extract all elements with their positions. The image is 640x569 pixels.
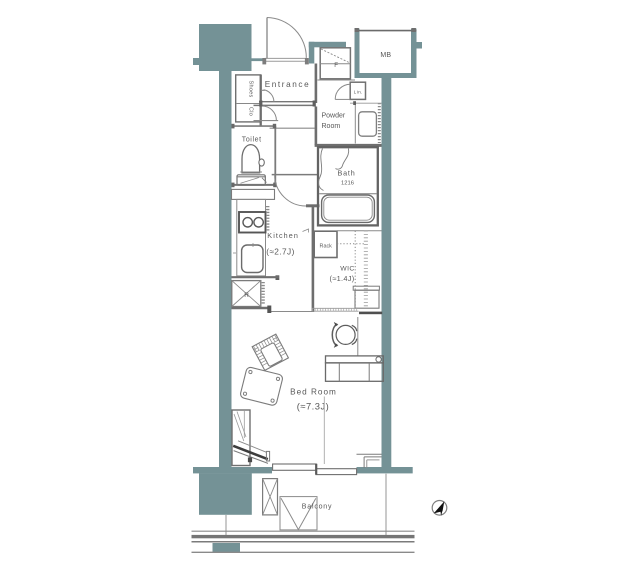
svg-text:MB: MB bbox=[380, 52, 391, 59]
svg-text:Bath: Bath bbox=[338, 169, 356, 178]
svg-text:R: R bbox=[244, 292, 249, 299]
svg-text:(≈2.7J): (≈2.7J) bbox=[266, 247, 295, 257]
svg-text:Room: Room bbox=[322, 123, 341, 130]
svg-text:Entrance: Entrance bbox=[265, 80, 311, 89]
svg-text:Toilet: Toilet bbox=[242, 137, 262, 144]
svg-text:Kitchen: Kitchen bbox=[267, 231, 299, 240]
svg-text:F: F bbox=[334, 62, 338, 69]
svg-text:L in.: L in. bbox=[354, 90, 362, 95]
svg-text:WIC: WIC bbox=[340, 265, 354, 272]
svg-text:Clo: Clo bbox=[247, 107, 253, 116]
svg-text:Balcony: Balcony bbox=[302, 504, 333, 511]
svg-text:Rack: Rack bbox=[320, 244, 333, 250]
svg-text:(≈1.4J): (≈1.4J) bbox=[329, 274, 354, 283]
svg-text:Shoes: Shoes bbox=[247, 81, 253, 98]
svg-text:Powder: Powder bbox=[322, 113, 346, 120]
svg-text:Bed Room: Bed Room bbox=[290, 387, 337, 396]
svg-text:1216: 1216 bbox=[341, 181, 354, 187]
